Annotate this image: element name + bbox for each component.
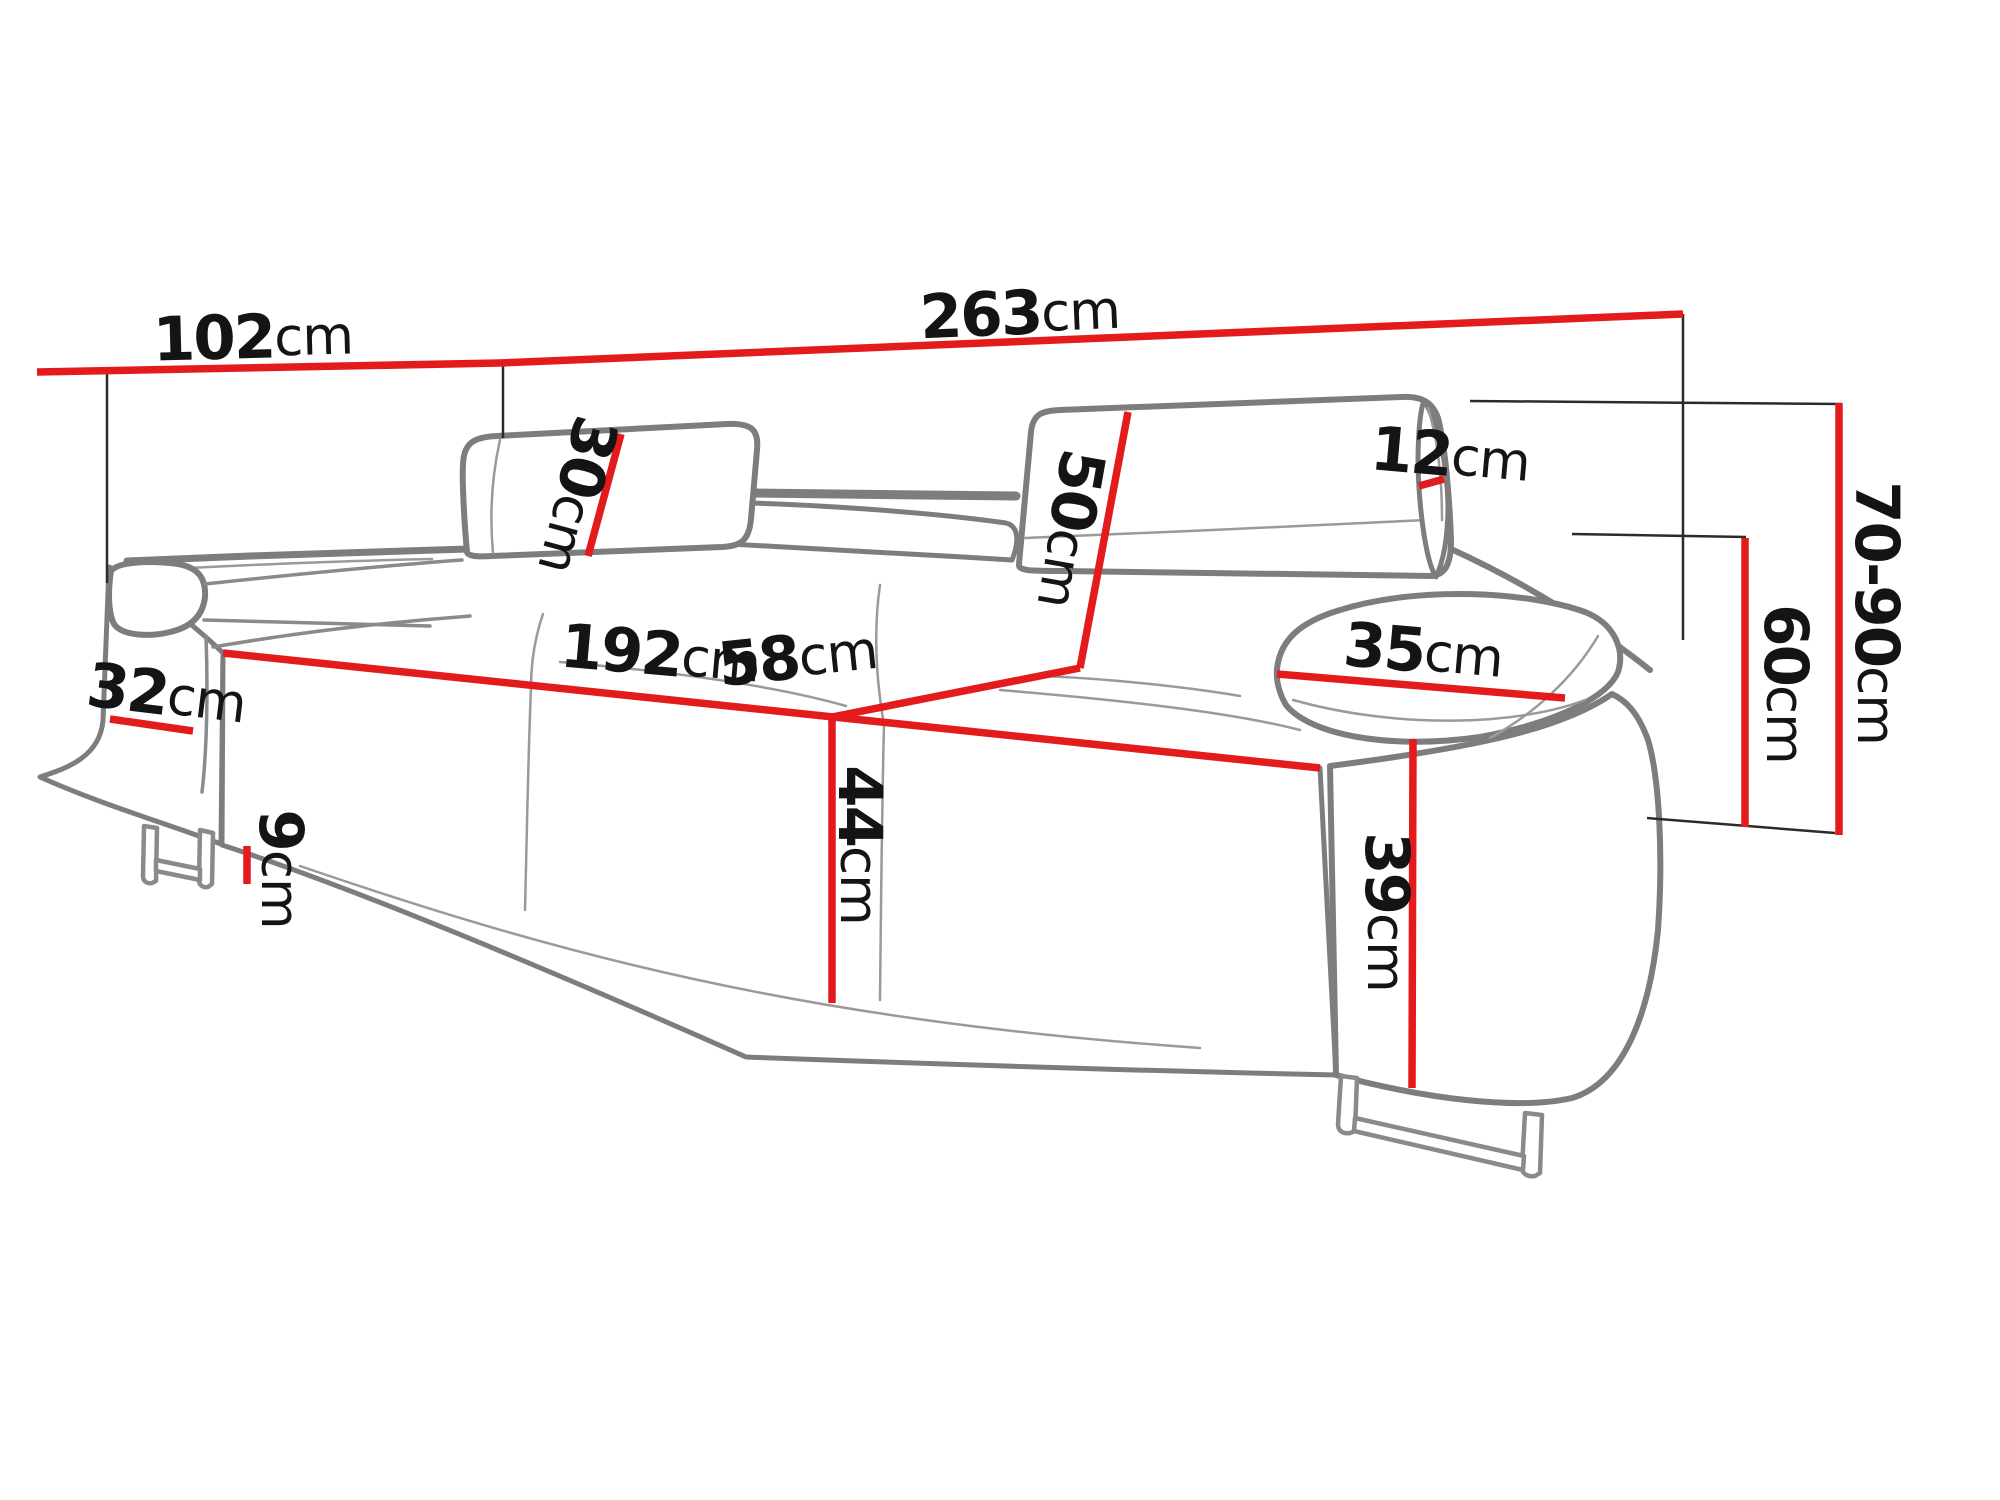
left-armrest-pillow-top-edge xyxy=(205,560,462,584)
dim-label-overall-height: 70-90cm xyxy=(1841,481,1912,745)
left-armrest-pillow-cap xyxy=(109,562,205,635)
right-seat-wrinkle-2 xyxy=(1040,676,1240,696)
right-leg-bar xyxy=(1354,1118,1524,1170)
seat-front-face xyxy=(222,653,1336,1075)
dim-label-headrest-thickness: 12cm xyxy=(1368,413,1533,498)
dim-label-armrest-front-height: 39cm xyxy=(1351,832,1422,992)
dim-label-seat-width: 192cm xyxy=(558,610,764,698)
dim-label-overall-depth: 102cm xyxy=(152,299,354,375)
dim-label-overall-width: 263cm xyxy=(918,273,1121,353)
dim-label-leg-height: 9cm xyxy=(245,809,316,928)
right-seat-wrinkle-1 xyxy=(1000,690,1300,730)
left-sled-leg xyxy=(143,826,213,887)
ref-floor-right xyxy=(1647,818,1835,833)
seat-gap-top-1 xyxy=(531,614,543,688)
ref-armrest-height-top xyxy=(1572,534,1746,537)
sofa-dimension-diagram: 102cm 263cm 30cm 12cm 50cm 58cm 192cm 44… xyxy=(0,0,2000,1500)
headrest-rail xyxy=(748,493,1016,496)
ref-overall-height-top xyxy=(1470,401,1841,404)
left-leg-bar xyxy=(156,860,200,880)
left-leg-front-post xyxy=(143,826,157,883)
dim-label-armrest-height: 60cm xyxy=(1750,604,1821,764)
diagram-canvas: 102cm 263cm 30cm 12cm 50cm 58cm 192cm 44… xyxy=(0,0,2000,1500)
dim-label-seat-height: 44cm xyxy=(824,765,895,925)
